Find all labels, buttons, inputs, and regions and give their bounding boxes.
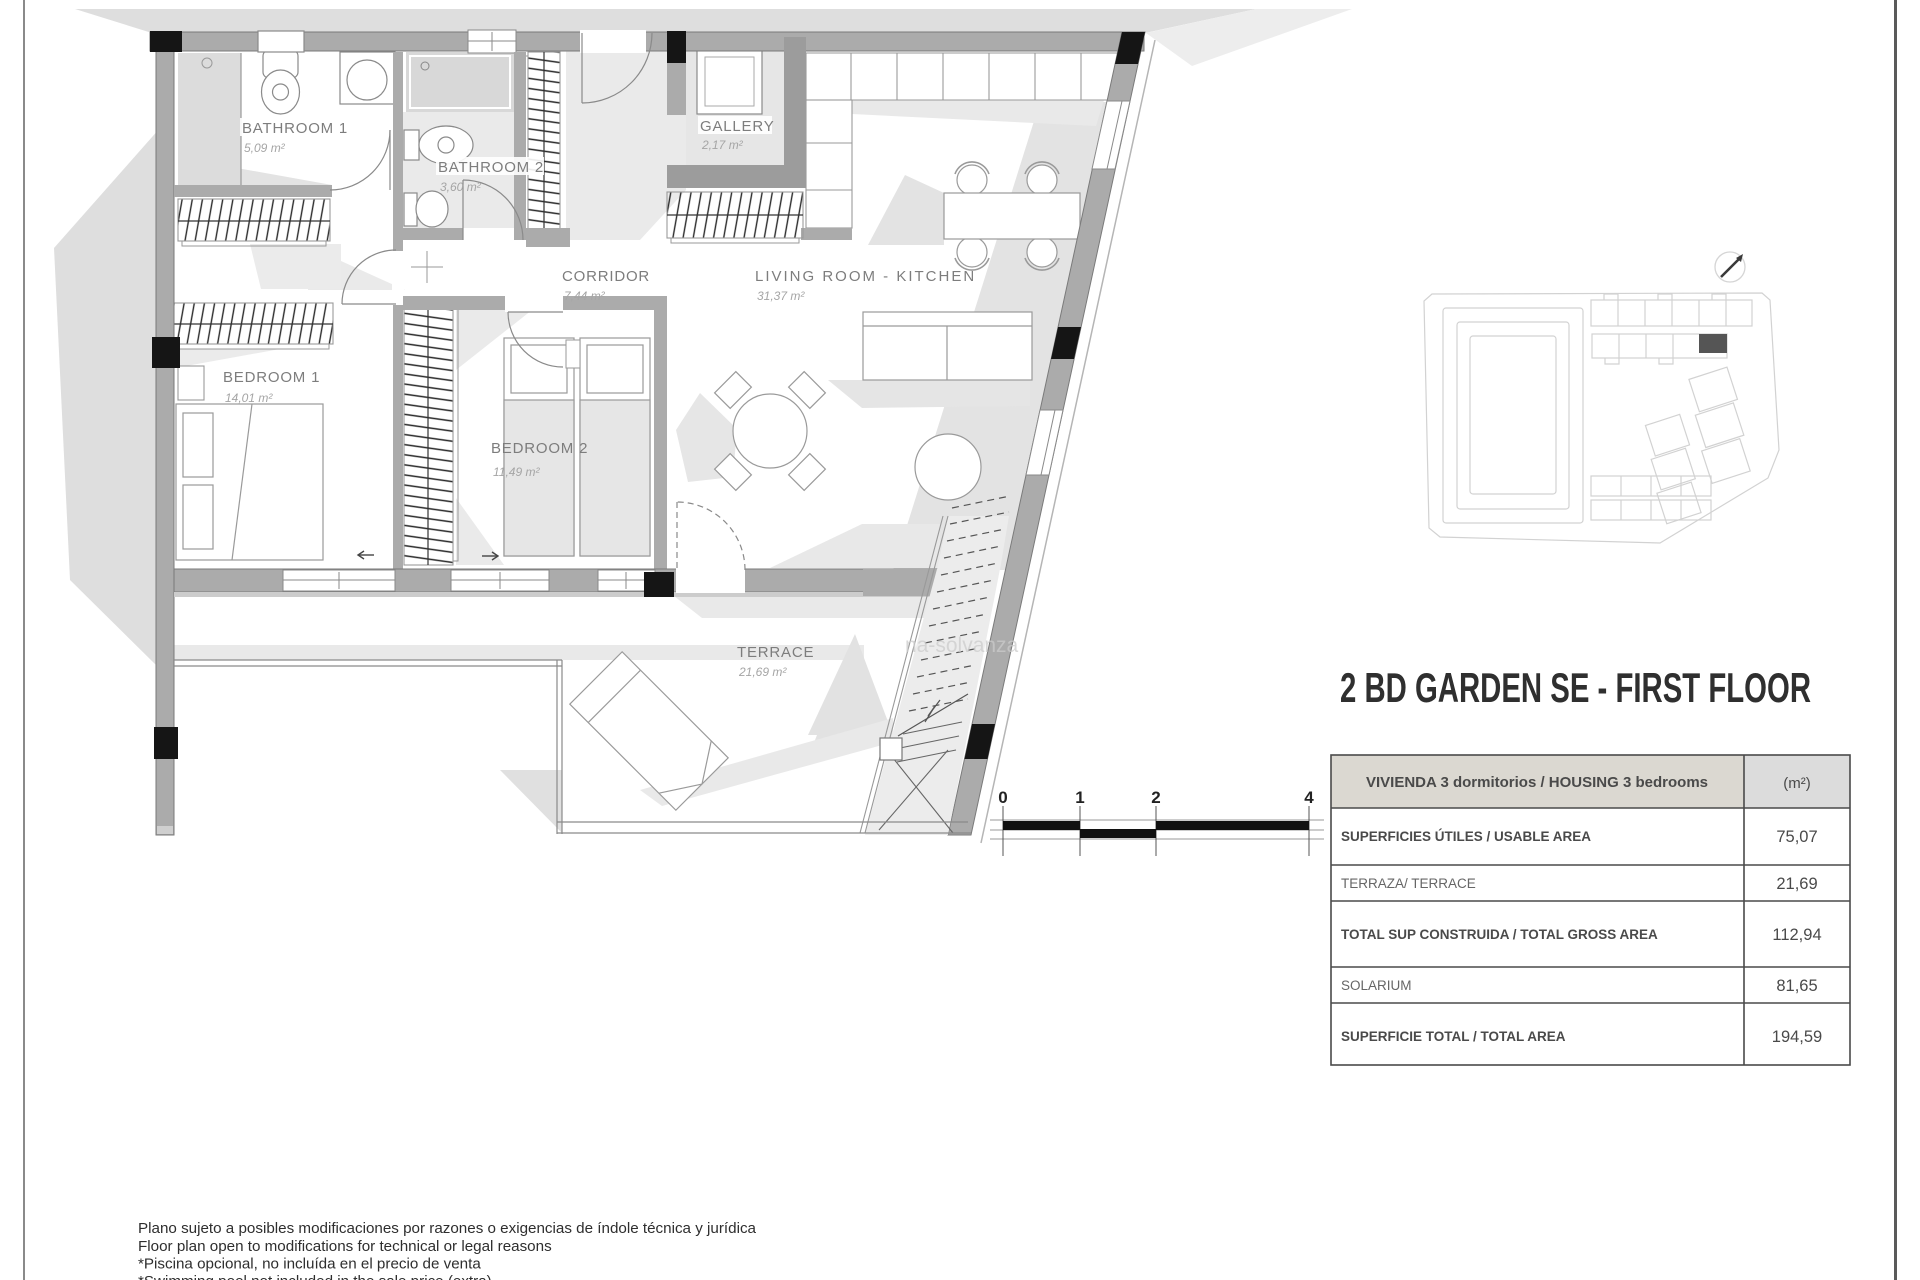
svg-text:*Swimming pool not included in: *Swimming pool not included in the sale … bbox=[138, 1273, 492, 1280]
svg-text:*Piscina opcional, no incluída: *Piscina opcional, no incluída en el pre… bbox=[138, 1256, 481, 1273]
svg-text:11,49 m²: 11,49 m² bbox=[493, 465, 540, 479]
svg-text:31,37 m²: 31,37 m² bbox=[757, 289, 805, 303]
svg-text:21,69 m²: 21,69 m² bbox=[738, 665, 787, 679]
svg-text:2: 2 bbox=[1151, 788, 1160, 807]
svg-text:3,60 m²: 3,60 m² bbox=[440, 180, 482, 194]
svg-text:0: 0 bbox=[998, 788, 1007, 807]
svg-text:(m²): (m²) bbox=[1783, 775, 1810, 792]
svg-text:BATHROOM 2: BATHROOM 2 bbox=[438, 159, 544, 176]
svg-text:GALLERY: GALLERY bbox=[700, 118, 775, 135]
svg-text:BATHROOM 1: BATHROOM 1 bbox=[242, 120, 348, 137]
svg-text:14,01 m²: 14,01 m² bbox=[225, 391, 273, 405]
svg-text:Plano sujeto a posibles modifi: Plano sujeto a posibles modificaciones p… bbox=[138, 1220, 757, 1237]
svg-text:CORRIDOR: CORRIDOR bbox=[562, 268, 650, 285]
svg-text:BEDROOM 1: BEDROOM 1 bbox=[223, 369, 320, 386]
svg-text:194,59: 194,59 bbox=[1772, 1028, 1822, 1046]
svg-text:SOLARIUM: SOLARIUM bbox=[1341, 978, 1412, 993]
svg-text:na-solvanza: na-solvanza bbox=[905, 634, 1019, 657]
svg-text:TERRAZA/ TERRACE: TERRAZA/ TERRACE bbox=[1341, 876, 1476, 891]
svg-text:LIVING ROOM - KITCHEN: LIVING ROOM - KITCHEN bbox=[755, 268, 976, 285]
svg-text:7,44 m²: 7,44 m² bbox=[564, 289, 606, 303]
svg-text:5,09 m²: 5,09 m² bbox=[244, 141, 286, 155]
svg-text:VIVIENDA 3 dormitorios / HOUSI: VIVIENDA 3 dormitorios / HOUSING 3 bedro… bbox=[1366, 774, 1708, 791]
svg-text:1: 1 bbox=[1075, 788, 1084, 807]
svg-text:SUPERFICIE TOTAL / TOTAL AREA: SUPERFICIE TOTAL / TOTAL AREA bbox=[1341, 1029, 1566, 1044]
svg-text:81,65: 81,65 bbox=[1776, 977, 1817, 995]
svg-text:75,07: 75,07 bbox=[1776, 828, 1817, 846]
svg-text:21,69: 21,69 bbox=[1776, 875, 1817, 893]
svg-text:TERRACE: TERRACE bbox=[737, 644, 814, 661]
svg-text:TOTAL SUP CONSTRUIDA / TOTAL G: TOTAL SUP CONSTRUIDA / TOTAL GROSS AREA bbox=[1341, 927, 1658, 942]
svg-text:2 BD GARDEN SE - FIRST FLOOR: 2 BD GARDEN SE - FIRST FLOOR bbox=[1340, 664, 1811, 711]
svg-text:4: 4 bbox=[1304, 788, 1314, 807]
svg-text:Floor plan open to modificatio: Floor plan open to modifications for tec… bbox=[138, 1238, 552, 1255]
svg-text:SUPERFICIES ÚTILES / USABLE AR: SUPERFICIES ÚTILES / USABLE AREA bbox=[1341, 829, 1591, 844]
svg-text:112,94: 112,94 bbox=[1772, 926, 1821, 944]
svg-text:BEDROOM 2: BEDROOM 2 bbox=[491, 440, 588, 457]
svg-text:2,17 m²: 2,17 m² bbox=[701, 138, 744, 152]
